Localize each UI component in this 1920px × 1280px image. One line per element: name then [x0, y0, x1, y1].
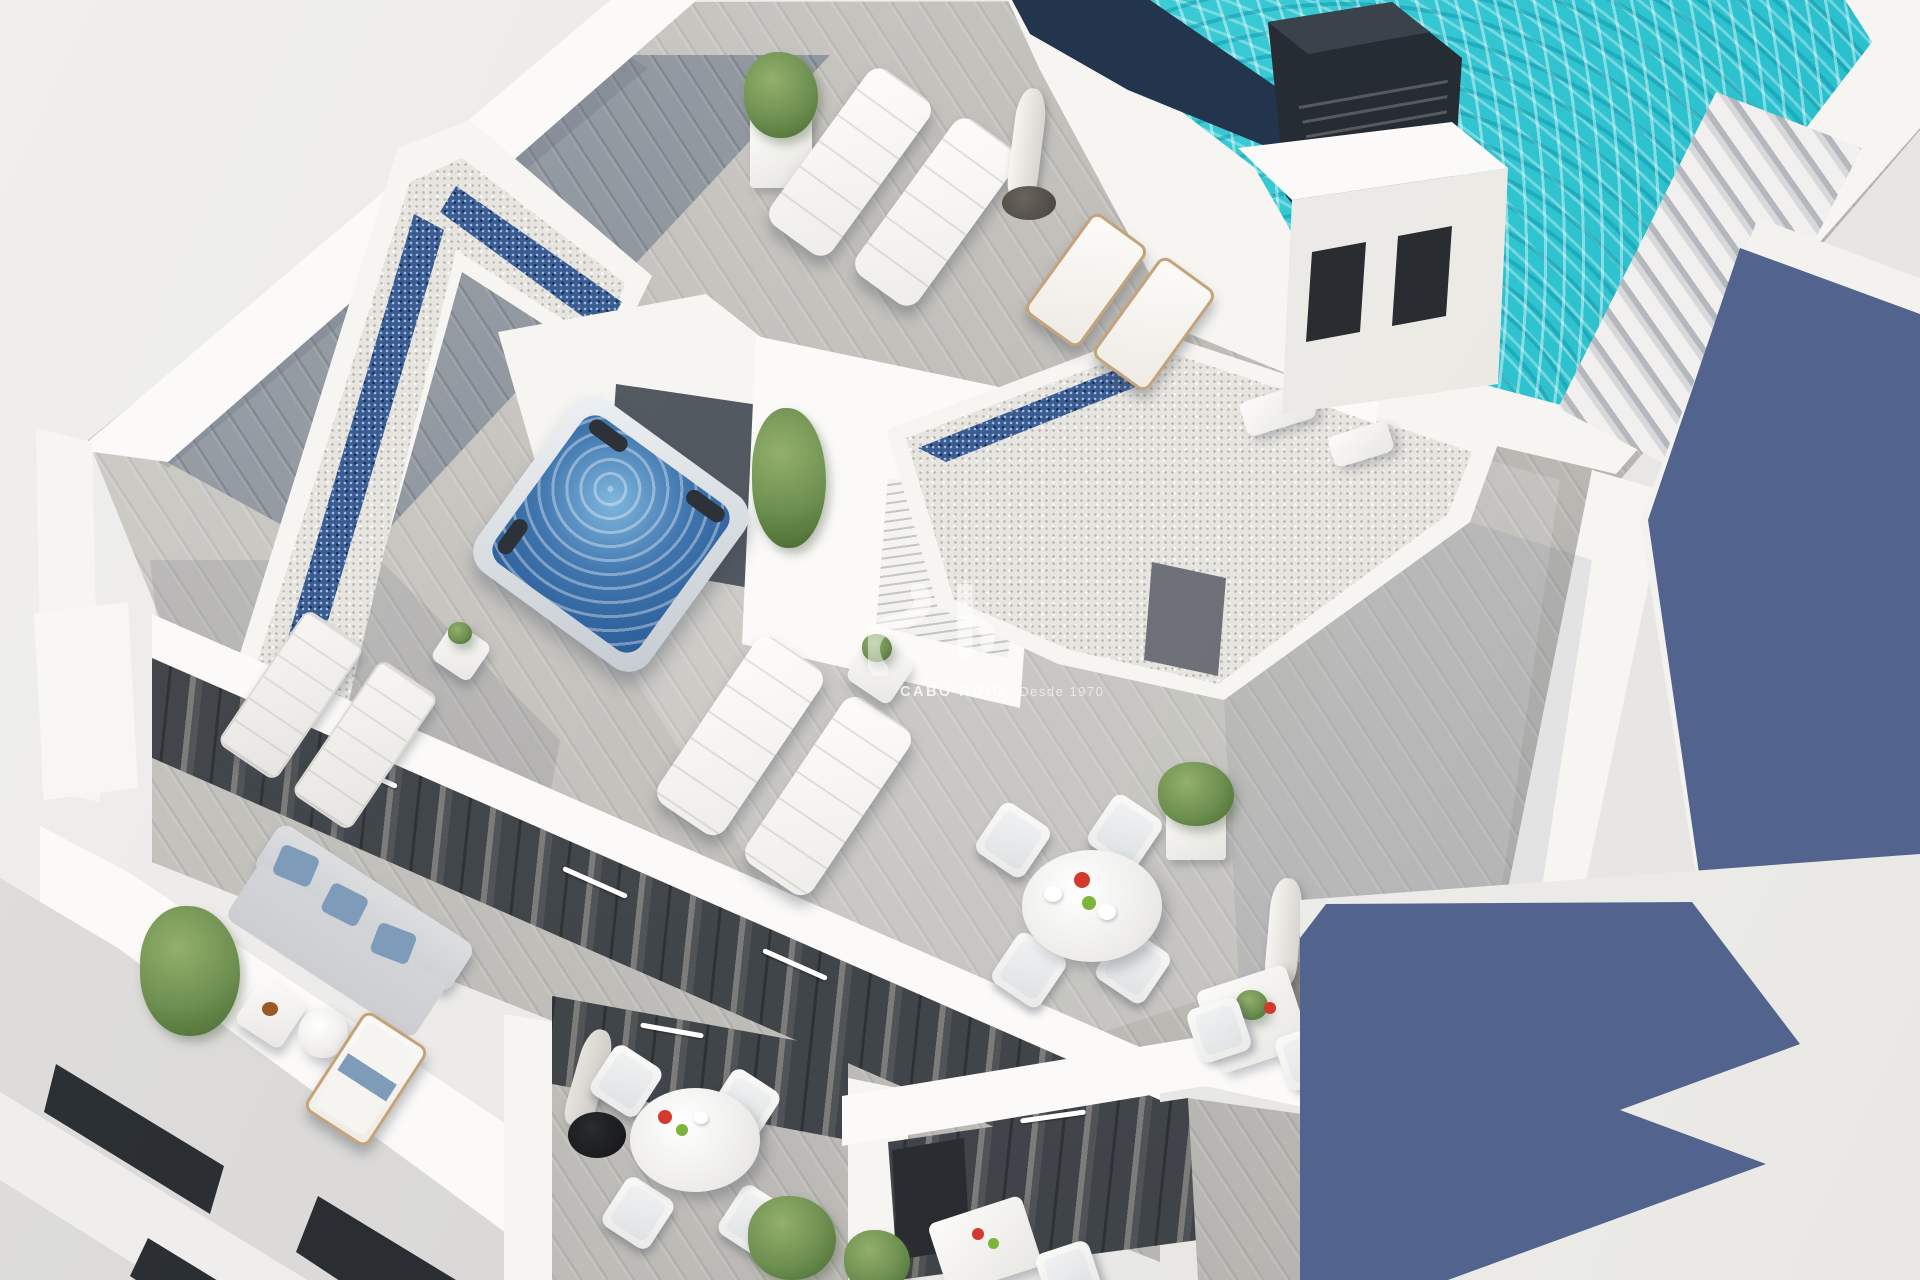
conical-plant [744, 52, 818, 138]
fruit-bowl [262, 1002, 278, 1016]
table-plant [862, 634, 892, 662]
green-bowl [676, 1124, 688, 1136]
red-plate [658, 1110, 672, 1124]
rooftop-render: CABO ROIG Desde 1970 [0, 0, 1920, 1280]
parasol-base [1002, 186, 1056, 220]
planter-plant [1158, 762, 1234, 826]
balcony-bush [748, 1196, 836, 1280]
niche-potted-plant [752, 408, 826, 548]
parasol-base-dark [568, 1112, 626, 1158]
green-bowl [988, 1238, 999, 1249]
white-plate [1044, 886, 1062, 902]
red-plate [1074, 872, 1090, 888]
red-plate [972, 1228, 984, 1240]
white-cup [694, 1112, 708, 1124]
round-dining-table [630, 1088, 760, 1192]
red-plate [1264, 1002, 1276, 1014]
table-plant [448, 622, 472, 644]
white-plate [1098, 904, 1116, 920]
green-bowl [1082, 896, 1096, 910]
balc-potted-plant [140, 906, 240, 1036]
